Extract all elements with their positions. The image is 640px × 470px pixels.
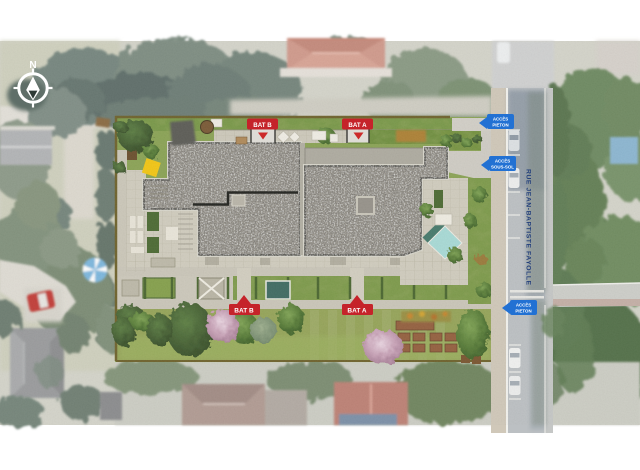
svg-text:SOUS-SOL: SOUS-SOL [491, 165, 514, 170]
svg-text:N: N [29, 60, 36, 71]
svg-text:ACCÈS: ACCÈS [493, 117, 508, 122]
svg-text:BAT B: BAT B [253, 122, 272, 129]
svg-text:RUE JEAN-BAPTISTE FAYOLLE: RUE JEAN-BAPTISTE FAYOLLE [525, 169, 532, 286]
svg-text:BAT A: BAT A [347, 308, 366, 315]
svg-text:PIETON: PIETON [515, 309, 531, 314]
svg-text:BAT A: BAT A [348, 122, 367, 129]
svg-text:BAT B: BAT B [234, 308, 254, 315]
svg-text:PIETON: PIETON [492, 123, 508, 128]
svg-text:ACCÈS: ACCÈS [516, 303, 531, 308]
svg-text:ACCÈS: ACCÈS [495, 159, 510, 164]
